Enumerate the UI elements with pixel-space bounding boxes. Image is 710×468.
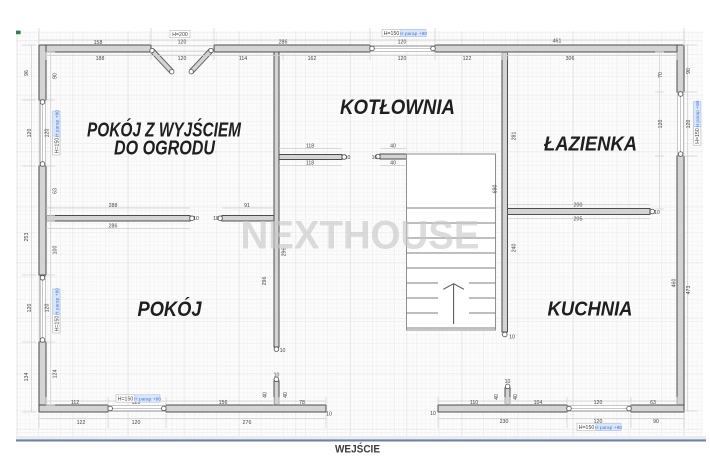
- svg-text:253: 253: [24, 233, 30, 242]
- svg-text:10: 10: [326, 412, 332, 418]
- svg-text:KUCHNIA: KUCHNIA: [548, 299, 633, 321]
- svg-text:120: 120: [132, 420, 141, 426]
- svg-text:104: 104: [534, 400, 543, 406]
- svg-text:ŁAZIENKA: ŁAZIENKA: [543, 133, 637, 155]
- svg-text:114: 114: [239, 56, 247, 62]
- svg-text:296: 296: [262, 277, 268, 286]
- svg-text:40: 40: [283, 392, 289, 398]
- svg-text:120: 120: [398, 40, 407, 46]
- svg-text:91: 91: [244, 203, 250, 209]
- svg-text:230: 230: [500, 419, 509, 425]
- svg-text:158: 158: [94, 40, 103, 46]
- svg-text:460: 460: [672, 279, 678, 288]
- svg-text:10: 10: [430, 411, 436, 417]
- svg-text:96: 96: [24, 70, 30, 76]
- svg-text:H=150: H=150: [384, 31, 400, 37]
- svg-text:162: 162: [308, 56, 317, 62]
- svg-text:H parap +80: H parap +80: [134, 397, 161, 403]
- svg-text:200: 200: [574, 203, 583, 209]
- svg-text:100: 100: [53, 246, 59, 255]
- svg-text:H=150: H=150: [54, 316, 60, 332]
- svg-text:63: 63: [53, 188, 59, 194]
- svg-text:120: 120: [27, 129, 33, 138]
- svg-text:120: 120: [658, 120, 664, 129]
- svg-text:H parap +80: H parap +80: [54, 288, 60, 315]
- svg-text:205: 205: [574, 217, 583, 223]
- svg-text:134: 134: [24, 373, 30, 382]
- svg-text:286: 286: [279, 40, 288, 46]
- svg-text:10: 10: [372, 155, 378, 161]
- svg-text:110: 110: [470, 400, 478, 406]
- svg-text:118: 118: [306, 161, 314, 167]
- svg-text:120: 120: [45, 304, 51, 313]
- svg-text:40: 40: [390, 161, 396, 167]
- svg-text:78: 78: [299, 400, 305, 406]
- svg-text:156: 156: [219, 400, 228, 406]
- svg-text:70: 70: [658, 72, 664, 78]
- svg-text:40: 40: [263, 392, 269, 398]
- svg-text:10: 10: [509, 335, 515, 341]
- svg-text:288: 288: [109, 203, 118, 209]
- svg-text:NEXTHOUSE: NEXTHOUSE: [241, 214, 480, 258]
- svg-text:120: 120: [594, 400, 603, 406]
- svg-text:276: 276: [243, 420, 252, 426]
- svg-text:461: 461: [553, 39, 562, 45]
- svg-text:POKÓJ: POKÓJ: [138, 297, 203, 321]
- svg-text:118: 118: [306, 144, 314, 150]
- svg-text:120: 120: [178, 56, 187, 62]
- svg-text:10: 10: [274, 373, 280, 379]
- svg-text:KOTŁOWNIA: KOTŁOWNIA: [340, 96, 455, 119]
- svg-text:40: 40: [494, 394, 500, 400]
- svg-text:10: 10: [654, 210, 660, 216]
- svg-text:H parap +80: H parap +80: [695, 100, 701, 127]
- svg-text:10: 10: [345, 155, 351, 161]
- svg-text:90: 90: [653, 419, 659, 425]
- svg-text:240: 240: [512, 244, 518, 253]
- svg-text:120: 120: [686, 120, 692, 129]
- svg-text:281: 281: [512, 132, 518, 141]
- svg-text:90: 90: [53, 73, 59, 79]
- svg-text:122: 122: [77, 420, 86, 426]
- svg-text:H parap +80: H parap +80: [54, 110, 60, 137]
- svg-text:690: 690: [493, 185, 499, 194]
- svg-text:124: 124: [53, 370, 59, 379]
- svg-text:120: 120: [398, 56, 407, 62]
- svg-text:40: 40: [390, 144, 396, 150]
- svg-text:H parap +80: H parap +80: [595, 425, 622, 431]
- svg-text:H=150: H=150: [695, 128, 701, 144]
- svg-text:H parap +80: H parap +80: [400, 31, 427, 37]
- svg-text:122: 122: [463, 56, 472, 62]
- svg-text:H=150: H=150: [579, 425, 595, 431]
- svg-text:306: 306: [566, 56, 575, 62]
- svg-text:10: 10: [193, 216, 199, 222]
- svg-text:10: 10: [505, 379, 511, 385]
- svg-text:473: 473: [686, 286, 692, 295]
- svg-text:10: 10: [280, 348, 286, 354]
- svg-text:H=150: H=150: [54, 138, 60, 154]
- svg-text:10: 10: [213, 216, 219, 222]
- svg-text:63: 63: [650, 400, 656, 406]
- svg-text:40: 40: [513, 394, 519, 400]
- svg-text:90: 90: [686, 68, 692, 74]
- svg-text:H=200: H=200: [172, 32, 188, 38]
- svg-text:188: 188: [96, 56, 105, 62]
- svg-text:120: 120: [45, 129, 51, 138]
- svg-text:H=150: H=150: [118, 397, 134, 403]
- svg-text:120: 120: [27, 304, 33, 313]
- svg-text:112: 112: [71, 400, 79, 406]
- svg-text:120: 120: [178, 40, 187, 46]
- svg-text:286: 286: [109, 224, 118, 230]
- svg-text:WEJŚCIE: WEJŚCIE: [335, 443, 380, 456]
- svg-text:DO OGRODU: DO OGRODU: [114, 138, 215, 160]
